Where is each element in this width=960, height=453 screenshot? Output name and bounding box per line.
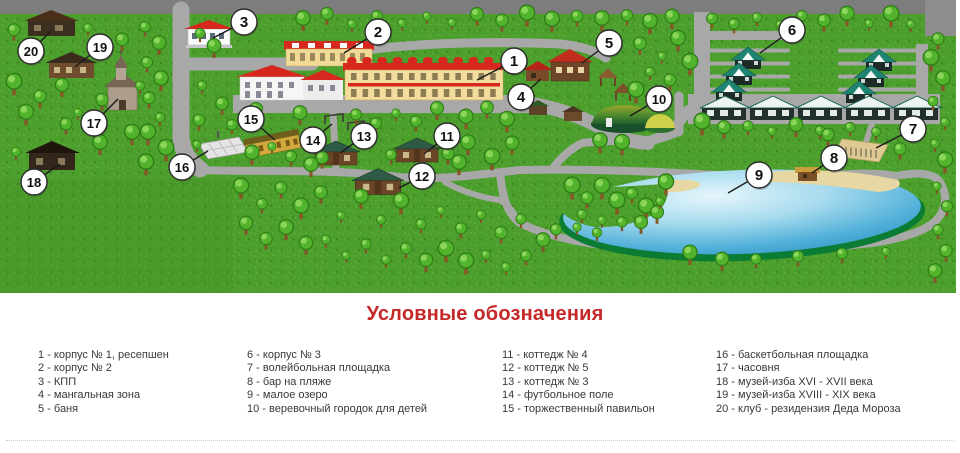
- svg-text:14: 14: [306, 133, 321, 148]
- svg-text:16: 16: [175, 160, 189, 175]
- svg-text:13: 13: [357, 129, 371, 144]
- svg-text:6: 6: [788, 22, 796, 39]
- svg-text:5: 5: [605, 35, 613, 52]
- svg-text:4: 4: [517, 89, 526, 106]
- legend-item: 16 - баскетбольная площадка: [716, 349, 901, 362]
- legend-item: 12 - коттедж № 5: [502, 362, 655, 375]
- legend-item: 7 - волейбольная площадка: [247, 362, 427, 375]
- svg-text:9: 9: [755, 167, 763, 184]
- legend-item: 11 - коттедж № 4: [502, 349, 655, 362]
- svg-text:15: 15: [244, 112, 258, 127]
- legend-item: 4 - мангальная зона: [38, 389, 169, 402]
- resort-map: 1234567891011121314151617181920: [0, 0, 960, 296]
- legend-item: 1 - корпус № 1, ресепшен: [38, 349, 169, 362]
- legend-item: 20 - клуб - резидензия Деда Мороза: [716, 403, 901, 416]
- legend-item: 17 - часовня: [716, 362, 901, 375]
- legend-item: 19 - музей-изба XVIII - XIX века: [716, 389, 901, 402]
- svg-text:12: 12: [415, 169, 429, 184]
- legend-item: 10 - веревочный городок для детей: [247, 403, 427, 416]
- svg-text:3: 3: [240, 14, 248, 31]
- svg-text:11: 11: [440, 129, 454, 144]
- svg-text:8: 8: [830, 150, 838, 167]
- legend-item: 14 - футбольное поле: [502, 389, 655, 402]
- svg-text:18: 18: [27, 175, 41, 190]
- building-korpus-2: [284, 41, 374, 66]
- svg-text:1: 1: [510, 53, 518, 70]
- legend-column-3: 11 - коттедж № 412 - коттедж № 513 - кот…: [502, 349, 655, 416]
- svg-text:17: 17: [87, 116, 101, 131]
- legend-item: 8 - бар на пляже: [247, 376, 427, 389]
- legend-item: 18 - музей-изба XVI - XVII века: [716, 376, 901, 389]
- svg-text:7: 7: [909, 121, 917, 138]
- legend-column-1: 1 - корпус № 1, ресепшен2 - корпус № 23 …: [38, 349, 169, 416]
- svg-text:20: 20: [24, 44, 38, 59]
- legend-item: 3 - КПП: [38, 376, 169, 389]
- legend-item: 9 - малое озеро: [247, 389, 427, 402]
- legend-item: 6 - корпус № 3: [247, 349, 427, 362]
- page-divider: [6, 440, 954, 441]
- svg-text:10: 10: [652, 92, 666, 107]
- legend-column-4: 16 - баскетбольная площадка17 - часовня1…: [716, 349, 901, 416]
- legend-item: 2 - корпус № 2: [38, 362, 169, 375]
- legend-item: 15 - торжественный павильон: [502, 403, 655, 416]
- resort-map-page: 1234567891011121314151617181920 Условные…: [0, 0, 960, 453]
- svg-text:19: 19: [93, 40, 107, 55]
- legend-item: 13 - коттедж № 3: [502, 376, 655, 389]
- svg-text:2: 2: [374, 24, 382, 41]
- legend-title: Условные обозначения: [0, 303, 960, 326]
- beach-bar: [795, 167, 820, 181]
- legend-column-2: 6 - корпус № 37 - волейбольная площадка8…: [247, 349, 427, 416]
- legend-item: 5 - баня: [38, 403, 169, 416]
